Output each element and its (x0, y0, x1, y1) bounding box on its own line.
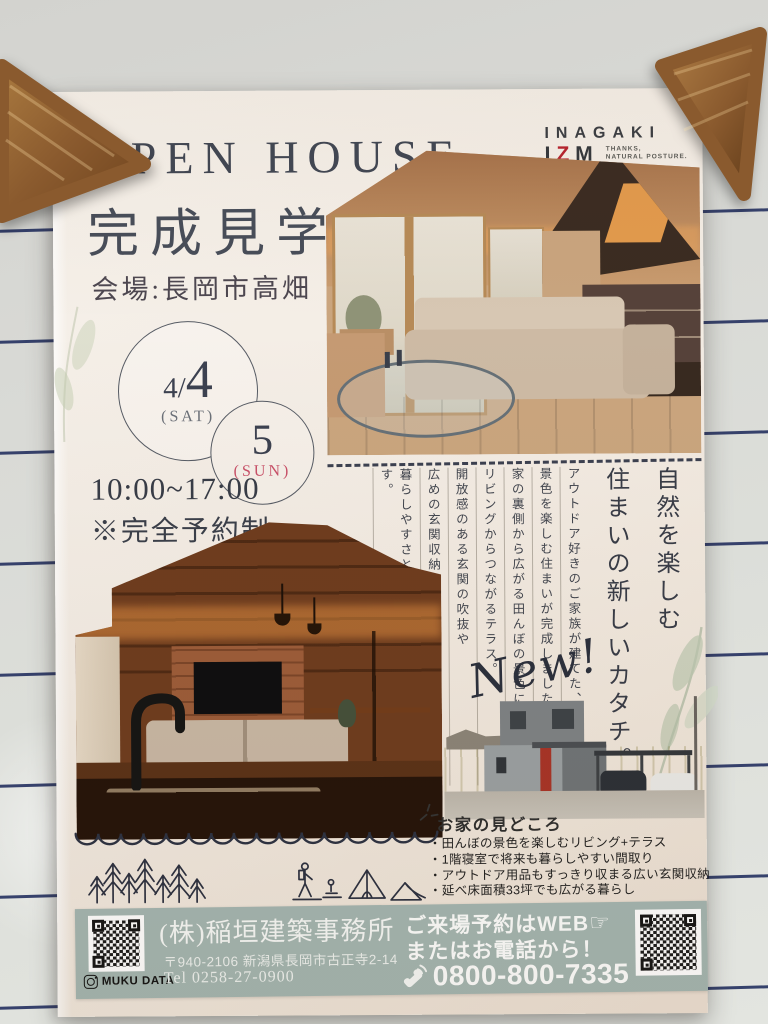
instagram-row: MUKU DATA (84, 974, 175, 989)
living-room-photo (326, 146, 702, 455)
highlight-item: ・田んぼの景色を楽しむリビング+テラス (429, 835, 699, 852)
instagram-icon (84, 975, 98, 989)
openhouse-flyer: INAGAKI IZMTHANKS,NATURAL POSTURE. OPEN … (52, 88, 708, 1017)
wood-magnet-right (648, 22, 768, 206)
date-sat: 4/4 (119, 348, 257, 411)
qr-code-instagram (88, 915, 145, 972)
highlight-item: ・延べ床面積33坪でも広がる暮らし (429, 882, 699, 899)
render-car-dark (600, 770, 646, 792)
house-exterior-render (444, 694, 705, 820)
render-porch-roof (532, 742, 606, 748)
phone-number: 0800-800-7335 (433, 958, 630, 993)
footer-band: MUKU DATA (株)稲垣建築事務所 〒940-2106 新潟県長岡市古正寺… (75, 901, 708, 999)
qr-finder (684, 914, 696, 926)
photo1-sofa-chaise (623, 324, 675, 394)
render-utility-pole (694, 696, 698, 796)
render-red-entrance (540, 747, 551, 793)
wood-magnet-left (0, 52, 158, 224)
company-name: (株)稲垣建築事務所 (159, 910, 395, 950)
render-house-upper (500, 701, 584, 748)
open-hours: 10:00~17:00 (91, 471, 260, 508)
qr-finder (640, 915, 652, 927)
scallop-border (73, 830, 447, 849)
highlight-item: ・アウトドア用品もすっきり収まる広い玄関収納 (429, 867, 699, 884)
photo2-sink (106, 787, 320, 830)
phone-row: 0800-800-7335 (402, 958, 630, 993)
qr-finder (128, 919, 140, 931)
photo2-faucet (114, 686, 199, 791)
photo1-wine-glass (385, 352, 390, 368)
photo1-wine-glass (397, 350, 402, 366)
qr-code-web (635, 909, 702, 976)
qr-finder (92, 920, 104, 932)
highlight-item: ・1階寝室で将来も暮らしやすい間取り (429, 851, 699, 868)
render-carport-post (596, 756, 599, 794)
qr-finder (641, 959, 653, 971)
venue-text: 会場:長岡市高畑 (91, 266, 312, 306)
photo2-lamp-cord (313, 597, 315, 625)
camping-sketch (287, 856, 429, 905)
phone-icon (402, 963, 428, 989)
photo2-lamp-cord (281, 584, 283, 616)
highlights-heading: お家の見どころ (437, 811, 563, 836)
photo2-plant (338, 699, 356, 727)
whiteboard-scene: INAGAKI IZMTHANKS,NATURAL POSTURE. OPEN … (0, 0, 768, 1024)
leaf-watercolor-left (49, 297, 110, 447)
render-window (552, 709, 574, 729)
highlights-list: ・田んぼの景色を楽しむリビング+テラス ・1階寝室で将来も暮らしやすい間取り ・… (429, 835, 699, 900)
date-sun: 5 (211, 415, 313, 465)
pine-trees-sketch (87, 849, 227, 906)
render-window (496, 757, 506, 773)
company-tel: Tel 0258-27-0900 (164, 968, 295, 988)
pointing-hand-icon: ☞ (589, 909, 611, 935)
qr-finder (92, 956, 104, 968)
render-window (510, 711, 526, 729)
photo2-tv (194, 662, 282, 715)
